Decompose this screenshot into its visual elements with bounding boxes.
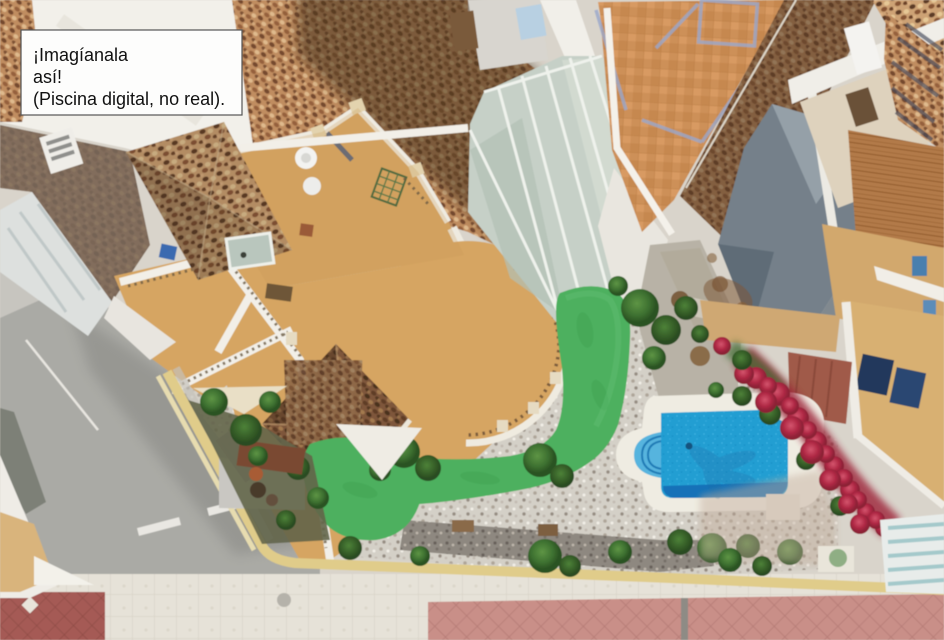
svg-text:así!: así!: [33, 67, 62, 87]
svg-text:(Piscina digital, no real).: (Piscina digital, no real).: [33, 89, 225, 109]
svg-text:¡Imagíanala: ¡Imagíanala: [33, 45, 129, 65]
